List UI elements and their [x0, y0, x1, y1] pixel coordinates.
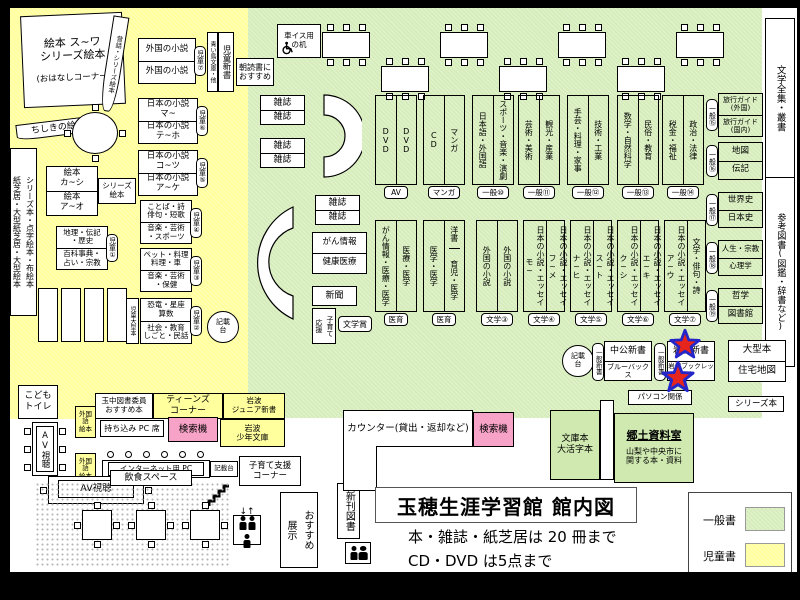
- study-table: [558, 32, 606, 58]
- magazine-rack-1: 雑誌 雑誌: [260, 95, 305, 125]
- health-medical-label: 健康医療: [313, 253, 366, 274]
- biography-label: 伝記: [719, 161, 762, 180]
- eating-table: [82, 510, 112, 540]
- legend-children-label: 児童書: [703, 548, 736, 564]
- shelf-col: 数学・自然科学: [618, 96, 638, 184]
- eating-space-label: 飲食スペース: [110, 470, 192, 486]
- shelf-col: 文学・俳句・詩: [687, 221, 705, 311]
- philosophy-label: 哲学: [719, 289, 762, 306]
- shelf-medicine-western-books: 医学・医学 洋書 育児・医学: [423, 220, 465, 312]
- shelf-badge-lit5: 文学⑤: [575, 313, 607, 326]
- restroom-icon: [345, 542, 371, 564]
- shelf-col: 日本の小説・エッセイ エ~キ: [640, 221, 663, 311]
- writing-stand-children: 記載 台: [207, 311, 239, 343]
- shelf-badge-lit3: 文学③: [481, 313, 513, 326]
- picture-books-ka-shi: 絵本 カ~シ: [47, 167, 97, 191]
- teens-corner: ティーンズ コーナー: [153, 393, 223, 419]
- shelf-col: 観光・産業: [539, 96, 560, 184]
- shelf-badge-general12: 一般⑫: [572, 186, 604, 199]
- iwanami-shonen-bunko: 岩波 少年文庫: [220, 419, 285, 447]
- school-committee-recommend-box: 玉中図書委員 おすすめ本: [95, 393, 153, 419]
- maps-label: 地図: [719, 143, 762, 161]
- writing-stand-general: 記載 台: [562, 345, 594, 377]
- shelf-col: 外国の小説: [477, 221, 497, 311]
- psychology-label: 心理学: [719, 258, 762, 276]
- study-table: [440, 32, 488, 58]
- literary-award-badge: 文学賞: [338, 316, 372, 332]
- shelf-col: 日本の小説・エッセイ モ~: [524, 221, 546, 311]
- restroom-male-icon: [350, 546, 357, 560]
- kids-round-table: [72, 112, 118, 154]
- series-books-label: シリーズ本: [728, 396, 784, 412]
- magazine-label: 雑誌: [316, 196, 359, 210]
- counter-extension: [343, 446, 377, 491]
- language-poetry-shelf: ことば・詩 俳句・短歌 音楽・芸術 ・スポーツ: [140, 200, 192, 244]
- shelf-crafts-tech: 手芸・料理・家事 技術・工業: [567, 95, 609, 185]
- foreign-language-picture-books-1: 外国語 絵本: [75, 406, 96, 438]
- music-art-sports: 音楽・芸術 ・スポーツ: [141, 222, 191, 244]
- children-badge-6: 児童⑥: [196, 106, 208, 136]
- childcare-support-corner: 子育て支援 コーナー: [239, 456, 301, 486]
- shelf-col: 外国の小説: [497, 221, 518, 311]
- life-religion-label: 人生・宗教: [719, 241, 762, 258]
- jnovels-a-ke: 日本の小説 ア~ケ: [139, 173, 197, 196]
- search-terminal-teens[interactable]: 検索機: [168, 417, 218, 442]
- pet-cooking-shelf: ペット・料理 料理・車 音楽・芸術 ・保健: [140, 248, 192, 292]
- study-table: [381, 66, 429, 92]
- star-marker-2: [660, 360, 696, 396]
- shelf-badge-general14: 一般⑭: [667, 186, 699, 199]
- bluebird-bunko-strip: 青い鳥文庫・他: [207, 32, 218, 92]
- wheelchair-icon: [281, 41, 295, 55]
- shelf-badge-lit6: 文学⑥: [622, 313, 654, 326]
- music-art-health: 音楽・芸術 ・保健: [141, 270, 191, 292]
- shelf-cancer-medical: がん情報・医療・医学 医療・医学: [375, 220, 417, 312]
- western-books: 洋書: [449, 221, 460, 248]
- shelf-col: 日本の小説・エッセイ ス~ト: [593, 221, 616, 311]
- large-books-label: 大型本: [729, 341, 785, 361]
- search-terminal-counter[interactable]: 検索機: [473, 412, 514, 447]
- eating-table: [190, 510, 220, 540]
- library-floor-map: 絵本 ス~ワ シリーズ絵本 (おはなしコーナー) 昔話・シリーズ絵本 ちしきの絵…: [10, 8, 797, 572]
- loan-rule-books: 本・雑誌・紙芝居は 20 冊まで: [408, 526, 617, 547]
- shelf-tax-politics: 税金・福祉 政治・法律: [662, 95, 704, 185]
- residential-maps-label: 住宅地図: [729, 361, 785, 382]
- empty-shelf: [84, 288, 104, 342]
- shelf-col: 技術・工業: [588, 96, 609, 184]
- series-picture-books-box: シリーズ 絵本: [98, 178, 136, 204]
- elevator-arrows: ↓↑: [239, 508, 254, 516]
- study-table: [499, 66, 547, 92]
- jnovels-ma: 日本の小説 マ~: [139, 99, 197, 121]
- recommended-display-shelf: おすすめ 展示: [280, 492, 318, 568]
- shelf-badge-lit7: 文学⑦: [669, 313, 701, 326]
- shelf-col: スポーツ・音楽・演劇: [493, 96, 514, 184]
- shelf-language-sports: 日本語・外国語 スポーツ・音楽・演劇: [472, 95, 514, 185]
- newspaper-rack: 新聞: [312, 286, 357, 306]
- wheelchair-desk: 車イス用 の机: [277, 24, 321, 58]
- pet-cooking-car: ペット・料理 料理・車: [141, 249, 191, 270]
- magazine-label: 雑誌: [261, 153, 304, 168]
- elevator-people: [234, 516, 260, 551]
- kids-toilet: こども トイレ: [18, 385, 58, 419]
- shelf-religion-psychology: 人生・宗教 心理学: [718, 240, 763, 276]
- shelf-badge-general17: 一般⑰: [706, 194, 718, 226]
- children-reference-shelf: 地理・伝記 ・歴史 百科事典・ 占い・宗教: [56, 226, 108, 270]
- shelf-col: 日本語・外国語: [473, 96, 493, 184]
- shelf-travel-guides: 旅行ガイド (外国) 旅行ガイド (国内): [718, 93, 763, 137]
- children-badge-3: 児童③: [190, 256, 202, 286]
- shelf-col: 政治・法律: [683, 96, 704, 184]
- dino-stars-math: 恐竜・星座 算数: [141, 299, 191, 321]
- study-table: [322, 32, 370, 58]
- local-history-subtitle: 山梨や中央市に 関する本・資料: [626, 447, 682, 466]
- shelf-col: DVD: [396, 96, 417, 184]
- restroom-female-icon: [358, 546, 367, 560]
- shelf-large-books-maps: 大型本 住宅地図: [728, 340, 786, 382]
- shelf-jnovels-a-u-poetry: 日本の小説・エッセイ ア~ウ 文学・俳句・詩: [664, 220, 706, 312]
- new-books-shelf: 新刊図書: [337, 483, 360, 539]
- shelf-jnovels-e-shi: 日本の小説・エッセイ ク~シ 日本の小説・エッセイ エ~キ: [617, 220, 659, 312]
- shelf-badge-general18: 一般⑱: [706, 242, 718, 274]
- dinosaur-science-shelf: 恐竜・星座 算数 社会・教育 しごと・民話: [140, 298, 192, 344]
- divider-strip: [600, 400, 614, 480]
- literature-collections-wall: 文学全集・叢書: [765, 18, 795, 178]
- chuko-shinsho-label: 中公新書: [605, 342, 651, 361]
- shelf-badge-general16: 一般⑯: [706, 145, 718, 177]
- encyclopedia-fortune-religion: 百科事典・ 占い・宗教: [57, 248, 107, 270]
- magazine-label: 雑誌: [316, 210, 359, 225]
- shelf-cd-manga: CD マンガ: [423, 95, 465, 185]
- shelf-col: 医療・医学: [396, 221, 417, 311]
- paperback-large-print-shelf: 文庫本 大活字本: [550, 410, 600, 480]
- legend-general-swatch: [745, 507, 785, 531]
- japanese-novels-children-shelf-2: 日本の小説 コ~ツ 日本の小説 ア~ケ: [138, 150, 198, 196]
- storytelling-line3: (おはなしコーナー): [36, 71, 111, 84]
- crescent-bench-upper: [318, 93, 362, 181]
- shelf-badge-general13: 一般⑬: [622, 186, 654, 199]
- japanese-novels-children-shelf-1: 日本の小説 マ~ 日本の小説 テ~ホ: [138, 98, 198, 144]
- empty-shelf: [38, 288, 58, 342]
- shelf-col: 日本の小説・エッセイ ナ~ヒ: [571, 221, 593, 311]
- foreign-novels-top: 外国の小説: [139, 39, 195, 61]
- study-table: [676, 32, 724, 58]
- library-science-label: 図書館: [719, 306, 762, 324]
- foreign-novels-bottom: 外国の小説: [139, 61, 195, 84]
- shelf-col: 芸術・美術: [519, 96, 539, 184]
- foreign-novels-children-shelf: 外国の小説 外国の小説: [138, 38, 196, 84]
- legend-general-label: 一般書: [703, 512, 736, 528]
- study-table: [617, 66, 665, 92]
- star-marker-1: [668, 328, 702, 362]
- shelf-badge-general15: 一般⑮: [706, 99, 718, 131]
- shelf-col: 医学・医学: [424, 221, 444, 311]
- shelf-col: 民俗・教育: [638, 96, 659, 184]
- shelf-col: がん情報・医療・医学: [376, 221, 396, 311]
- shelf-philosophy-library: 哲学 図書館: [718, 288, 763, 324]
- shelf-col: 手芸・料理・家事: [568, 96, 588, 184]
- geo-biography-history: 地理・伝記 ・歴史: [57, 227, 107, 248]
- shelf-col-split: 洋書 育児・医学: [444, 221, 465, 311]
- writing-stand-small: 記載台: [210, 461, 238, 477]
- society-education-folk: 社会・教育 しごと・民話: [141, 321, 191, 344]
- picture-books-shelf: 絵本 カ~シ 絵本 ア~オ: [46, 166, 98, 216]
- picture-books-a-o: 絵本 ア~オ: [47, 191, 97, 216]
- eating-table: [136, 510, 166, 540]
- map-title: 玉穂生涯学習館 館内図: [375, 487, 637, 523]
- children-badge-4: 児童④: [190, 208, 202, 238]
- byod-pc-seats: 持ち込み PC 席: [100, 420, 164, 437]
- shelf-jnovels-fu-mo: 日本の小説・エッセイ モ~ 日本の小説・エッセイ フ~メ: [523, 220, 565, 312]
- general-shinsho-badge-1: 一般新書: [592, 343, 604, 381]
- reference-books-wall: 参考図書(図鑑・辞書など): [765, 177, 795, 367]
- children-shinsho-strip: 児童新書: [218, 32, 234, 92]
- av-viewing-label: AV視聴: [36, 426, 54, 472]
- shelf-math-folk: 数学・自然科学 民俗・教育: [617, 95, 659, 185]
- magazine-label: 雑誌: [261, 96, 304, 110]
- local-history-room: 郷土資料室 山梨や中央市に 関する本・資料: [614, 413, 694, 483]
- children-badge-7: 児童⑦: [194, 46, 206, 76]
- shelf-col: DVD: [376, 96, 396, 184]
- cancer-info-label: がん情報: [313, 233, 366, 253]
- jnovels-ko-tsu: 日本の小説 コ~ツ: [139, 151, 197, 173]
- legend-box: 一般書 児童書: [688, 492, 792, 572]
- shelf-chuko-bluebacks: 中公新書 ブルーバックス: [604, 341, 652, 381]
- crescent-bench-lower: [255, 205, 299, 321]
- shelf-col: 日本の小説・エッセイ フ~メ: [546, 221, 569, 311]
- elevator-icon: ↓↑: [233, 515, 261, 545]
- storytelling-line2: シリーズ絵本: [40, 49, 106, 65]
- children-badge-5: 児童⑤: [196, 158, 208, 188]
- iwanami-junior-shinsho: 岩波 ジュニア新書: [223, 393, 285, 419]
- shelf-badge-av: AV: [384, 186, 408, 199]
- shelf-foreign-novels: 外国の小説 外国の小説: [476, 220, 518, 312]
- shelf-badge-lit4: 文学④: [528, 313, 560, 326]
- loan-rule-cd-dvd: CD・DVD は5点まで: [408, 550, 552, 571]
- empty-shelf: [61, 288, 81, 342]
- shelf-col: マンガ: [444, 96, 465, 184]
- children-badge-1: 児童①: [106, 234, 118, 262]
- health-info-rack: がん情報 健康医療: [312, 232, 367, 274]
- legend-children-swatch: [745, 543, 785, 567]
- shelf-col: 日本の小説・エッセイ ク~シ: [618, 221, 640, 311]
- jnovels-te-ho: 日本の小説 テ~ホ: [139, 121, 197, 144]
- shelf-maps-biography: 地図 伝記: [718, 142, 763, 180]
- circulation-counter[interactable]: カウンター(貸出・返却など): [343, 410, 473, 447]
- magazine-rack-2: 雑誌 雑誌: [260, 138, 305, 168]
- shelf-badge-general10: 一般⑩: [477, 186, 509, 199]
- world-history-label: 世界史: [719, 193, 762, 210]
- local-history-title: 郷土資料室: [627, 430, 682, 443]
- shelf-col: 日本の小説・エッセイ ア~ウ: [665, 221, 687, 311]
- travel-guide-domestic: 旅行ガイド (国内): [719, 115, 762, 137]
- kotoba-haiku: ことば・詩 俳句・短歌: [141, 201, 191, 222]
- japan-history-label: 日本史: [719, 210, 762, 228]
- morning-reading-recommend-box: 朝読書に おすすめ: [236, 58, 274, 86]
- childcare-support-books: 子育て 応援: [312, 308, 336, 344]
- magazine-label: 雑誌: [261, 139, 304, 153]
- shelf-badge-general11: 一般⑪: [523, 186, 555, 199]
- shelf-av-dvd: DVD DVD: [375, 95, 417, 185]
- shelf-world-japan-history: 世界史 日本史: [718, 192, 763, 228]
- shelf-badge-manga: マンガ: [428, 186, 460, 199]
- magazine-rack-3: 雑誌 雑誌: [315, 195, 360, 225]
- bluebacks-label: ブルーバックス: [605, 361, 651, 381]
- shelf-art-tourism: 芸術・美術 観光・産業: [518, 95, 560, 185]
- series-braille-books-wall-strip: シリーズ本・点字絵本・布絵本 紙芝居・大型紙芝居・大型絵本: [10, 148, 37, 316]
- shelf-jnovels-su-hi: 日本の小説・エッセイ ナ~ヒ 日本の小説・エッセイ ス~ト: [570, 220, 612, 312]
- children-large-books-strip: 児童大型本: [126, 298, 139, 344]
- magazine-label: 雑誌: [261, 110, 304, 125]
- childcare-medicine: 育児・医学: [449, 248, 460, 311]
- shelf-col: CD: [424, 96, 444, 184]
- travel-guide-foreign: 旅行ガイド (外国): [719, 94, 762, 115]
- shelf-badge-general19: 一般⑲: [706, 290, 718, 322]
- children-badge-2: 児童②: [190, 306, 202, 336]
- shelf-col: 税金・福祉: [663, 96, 683, 184]
- shelf-badge-medical2: 医育: [432, 313, 456, 326]
- empty-shelf: [107, 288, 127, 342]
- shelf-badge-medical1: 医育: [384, 313, 408, 326]
